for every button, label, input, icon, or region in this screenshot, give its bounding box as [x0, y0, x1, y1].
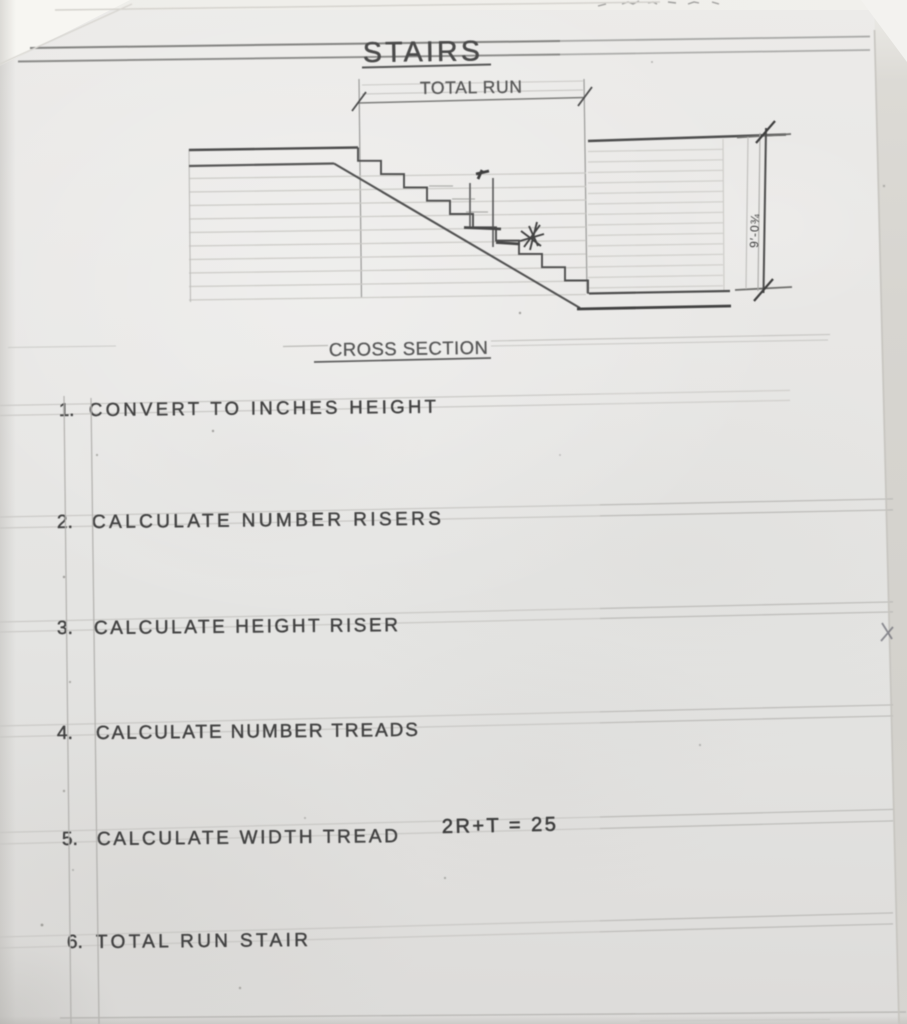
svg-text:1.: 1. [59, 399, 75, 420]
svg-text:4.: 4. [57, 723, 73, 744]
svg-text:TOTAL RUN STAIR: TOTAL RUN STAIR [96, 930, 308, 953]
svg-text:2R+T = 25: 2R+T = 25 [442, 814, 556, 838]
svg-text:3.: 3. [57, 618, 73, 639]
svg-text:CALCULATE NUMBER RISERS: CALCULATE NUMBER RISERS [92, 509, 441, 533]
svg-text:TOTAL RUN: TOTAL RUN [420, 77, 522, 98]
svg-text:CONVERT TO INCHES HEIGHT: CONVERT TO INCHES HEIGHT [89, 396, 436, 420]
svg-text:9′-0¾: 9′-0¾ [747, 213, 762, 248]
svg-text:STAIRS: STAIRS [363, 35, 480, 69]
svg-text:5.: 5. [62, 829, 78, 850]
svg-text:6.: 6. [67, 932, 83, 953]
svg-text:CALCULATE WIDTH TREAD: CALCULATE WIDTH TREAD [97, 826, 398, 850]
svg-text:CROSS SECTION: CROSS SECTION [329, 337, 488, 360]
svg-text:CALCULATE NUMBER TREADS: CALCULATE NUMBER TREADS [96, 720, 418, 744]
svg-text:CALCULATE HEIGHT RISER: CALCULATE HEIGHT RISER [94, 615, 398, 639]
